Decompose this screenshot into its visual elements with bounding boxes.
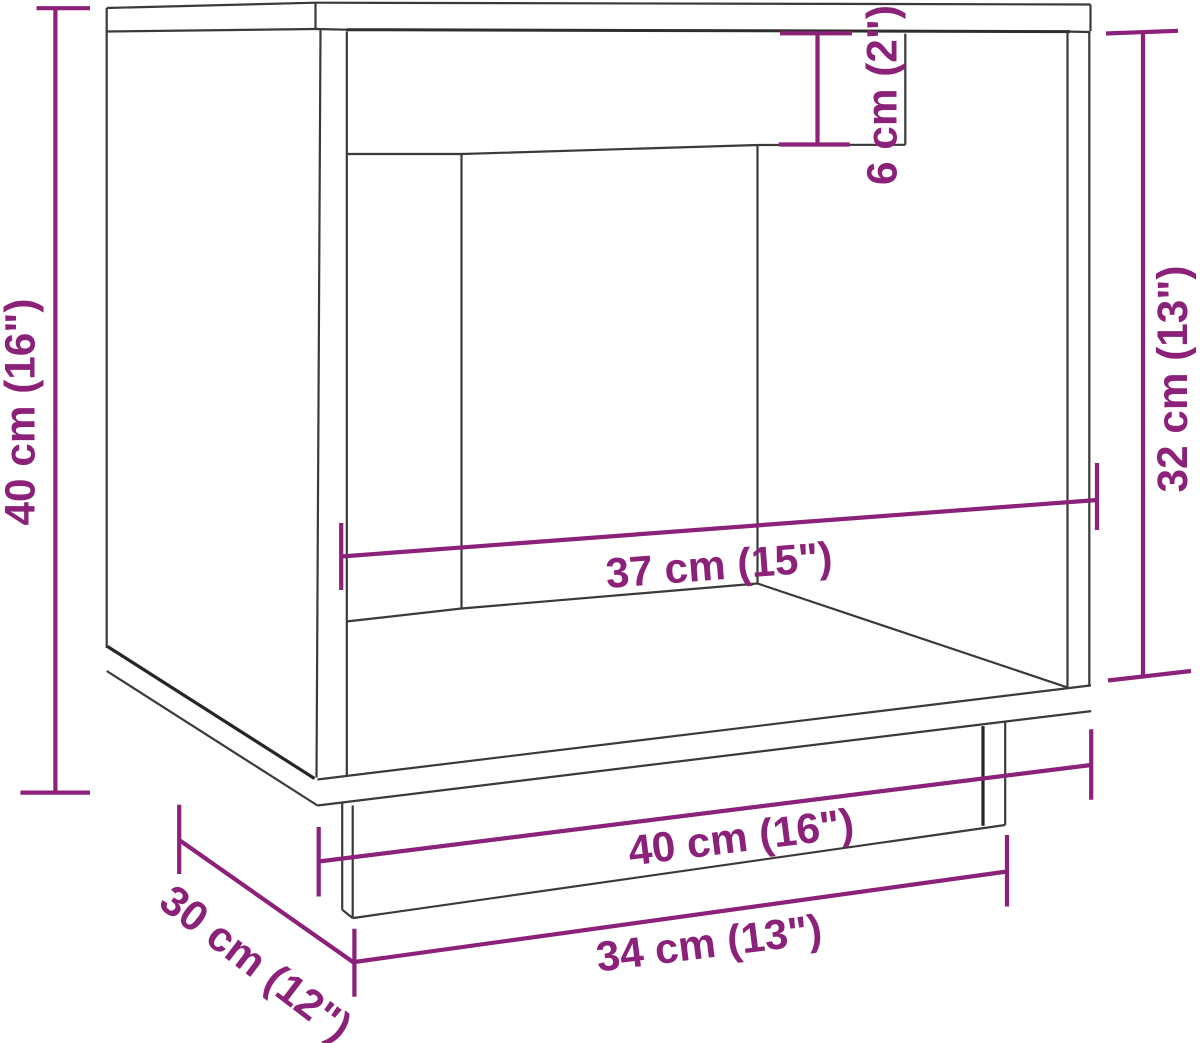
svg-text:6 cm (2"): 6 cm (2") bbox=[859, 5, 906, 185]
svg-text:32 cm (13"): 32 cm (13") bbox=[1149, 266, 1196, 493]
svg-text:40 cm (16"): 40 cm (16") bbox=[0, 299, 44, 526]
